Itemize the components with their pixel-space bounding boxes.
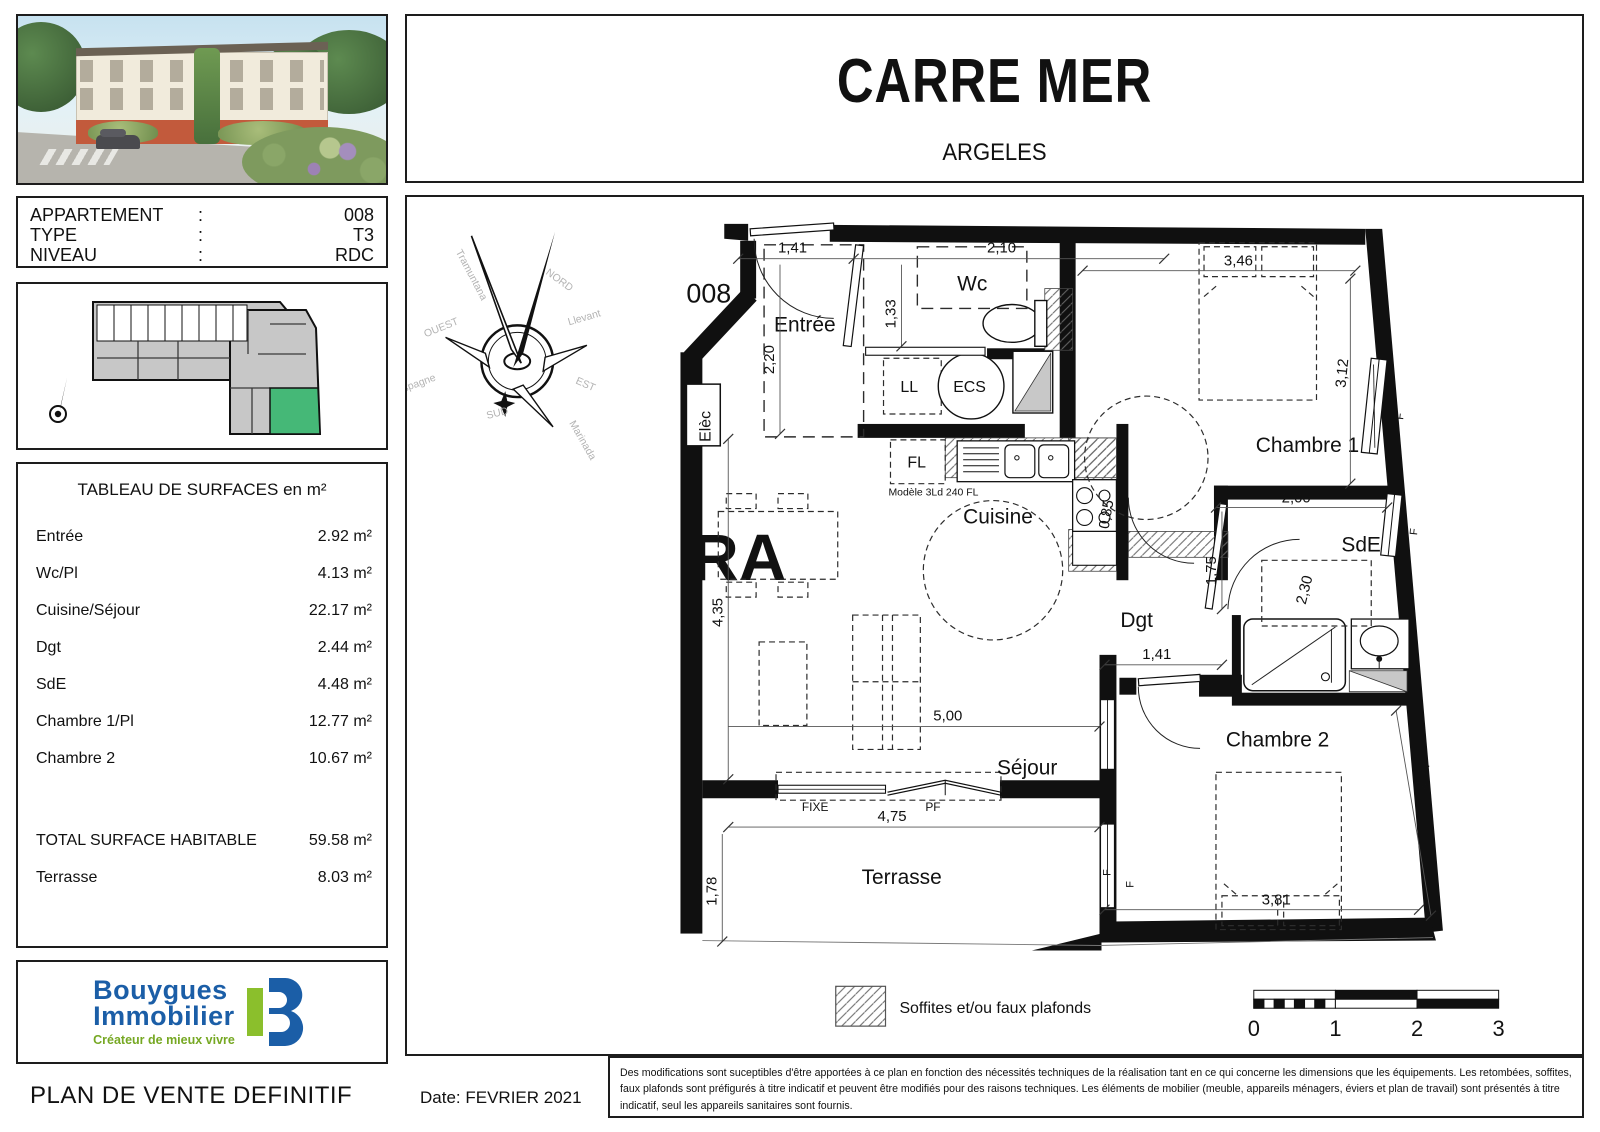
scale-tick: 3: [1493, 1016, 1505, 1041]
row-label: SdE: [36, 676, 66, 694]
table-row: Chambre 210.67 m²: [36, 750, 372, 768]
floor-plan-svg: RA Tramuntana NORD OUEST Llevant EST SUD…: [407, 197, 1582, 1054]
room-label-chambre2: Chambre 2: [1226, 728, 1329, 751]
bed-chambre1: [1199, 243, 1316, 400]
date-label: Date: FEVRIER 2021: [420, 1088, 582, 1108]
laundry-closet: LL ECS: [866, 347, 1004, 419]
scale-tick: 0: [1248, 1016, 1260, 1041]
room-label-sde: SdE: [1341, 533, 1381, 556]
bouygues-logo-mark: [245, 972, 311, 1052]
photo-crosswalk: [39, 149, 118, 165]
row-label: Wc/Pl: [36, 565, 78, 583]
washer-label: LL: [900, 379, 918, 396]
table-row: Wc/Pl4.13 m²: [36, 565, 372, 583]
room-label-terrasse: Terrasse: [862, 866, 942, 889]
row-label: Entrée: [36, 528, 83, 546]
disclaimer-box: Des modifications sont suceptibles d'êtr…: [608, 1056, 1584, 1118]
room-label-cuisine: Cuisine: [963, 505, 1033, 528]
compass-label-tramuntana: Tramuntana: [453, 248, 489, 303]
window-f-label: F: [1101, 869, 1113, 876]
building-locator-plan: [16, 282, 388, 450]
table-total-row: TOTAL SURFACE HABITABLE59.58 m²: [36, 832, 372, 850]
photo-car: [96, 135, 140, 149]
pf-label: PF: [925, 800, 940, 814]
row-value: 8.03 m²: [318, 869, 372, 887]
unit-number: 008: [686, 279, 731, 309]
table-row: Dgt2.44 m²: [36, 639, 372, 657]
locator-compass-icon: [48, 378, 67, 422]
dim: 5,00: [933, 708, 962, 725]
kitchen-counter: [957, 441, 1074, 482]
elec-niche: Elèc: [686, 384, 720, 446]
info-label: APPARTEMENT: [30, 205, 198, 225]
toilet: [983, 301, 1047, 347]
room-label-sejour: Séjour: [997, 756, 1057, 779]
table-row: Terrasse8.03 m²: [36, 869, 372, 887]
row-value: 12.77 m²: [309, 713, 372, 731]
info-row: TYPE : T3: [30, 225, 374, 245]
row-label: Cuisine/Séjour: [36, 602, 140, 620]
dim: 4,75: [878, 808, 907, 825]
room-label-dgt: Dgt: [1120, 609, 1153, 632]
elec-label: Elèc: [697, 411, 714, 442]
shower-clearance: [1262, 560, 1371, 626]
apartment-info-box: APPARTEMENT : 008 TYPE : T3 NIVEAU : RDC: [16, 196, 388, 268]
table-row: Cuisine/Séjour22.17 m²: [36, 602, 372, 620]
row-value: 2.92 m²: [318, 528, 372, 546]
dim: 2,20: [761, 345, 778, 374]
project-title: CARRE MER: [513, 46, 1477, 117]
disclaimer-text: Des modifications sont suceptibles d'êtr…: [620, 1067, 1572, 1112]
bouygues-logo-box: Bouygues Immobilier Créateur de mieux vi…: [16, 960, 388, 1064]
row-value: 4.13 m²: [318, 565, 372, 583]
dim: 3,81: [1262, 892, 1291, 909]
info-colon: :: [198, 205, 218, 225]
scale-tick: 2: [1411, 1016, 1423, 1041]
window-f-label: F: [1408, 528, 1421, 536]
dim: 3,12: [1332, 358, 1352, 389]
row-value: 59.58 m²: [309, 832, 372, 850]
bathroom-sink: [1351, 619, 1409, 669]
table-row: Entrée2.92 m²: [36, 528, 372, 546]
compass-label-vent-espagne: Vent d'Espagne: [407, 373, 438, 408]
dim: 2,77: [1412, 759, 1434, 791]
compass-rose: Tramuntana NORD OUEST Llevant EST SUD Ve…: [407, 232, 602, 462]
fixe-label: FIXE: [802, 800, 829, 814]
room-label-wc: Wc: [957, 273, 987, 296]
bouygues-logo-text: Bouygues Immobilier Créateur de mieux vi…: [93, 977, 235, 1047]
info-value: RDC: [218, 245, 374, 265]
room-label-entree: Entrée: [774, 313, 836, 336]
info-colon: :: [198, 225, 218, 245]
info-value: T3: [218, 225, 374, 245]
row-label: Chambre 1/Pl: [36, 713, 134, 731]
legend: Soffites et/ou faux plafonds: [836, 986, 1091, 1026]
dim: 1,78: [703, 877, 720, 906]
surface-table-title: TABLEAU DE SURFACES en m²: [18, 480, 386, 500]
scale-tick: 1: [1329, 1016, 1341, 1041]
info-row: APPARTEMENT : 008: [30, 205, 374, 225]
watermark: RA: [691, 521, 786, 594]
compass-label-llevant: Llevant: [567, 308, 602, 328]
floor-plan-box: RA Tramuntana NORD OUEST Llevant EST SUD…: [405, 195, 1584, 1056]
row-value: 22.17 m²: [309, 602, 372, 620]
room-label-chambre1: Chambre 1: [1256, 434, 1359, 457]
compass-label-est: EST: [574, 376, 598, 395]
project-title-box: CARRE MER ARGELES: [405, 14, 1584, 183]
fridge-model-label: Modèle 3Ld 240 FL: [888, 488, 978, 499]
dim: 2,00: [1282, 490, 1311, 507]
info-label: NIVEAU: [30, 245, 198, 265]
row-value: 2.44 m²: [318, 639, 372, 657]
window-f-label: F: [1394, 412, 1407, 420]
coffee-table: [759, 642, 807, 726]
table-row: SdE4.48 m²: [36, 676, 372, 694]
legend-soffits-label: Soffites et/ou faux plafonds: [899, 1000, 1091, 1017]
logo-tagline: Créateur de mieux vivre: [93, 1033, 235, 1047]
logo-name-line2: Immobilier: [93, 1003, 235, 1029]
dim: 1,33: [882, 299, 899, 328]
info-label: TYPE: [30, 225, 198, 245]
dim: 1,41: [1142, 646, 1171, 663]
compass-label-sud: SUD: [485, 406, 509, 422]
compass-label-nord: NORD: [543, 267, 575, 294]
locator-building: [93, 302, 320, 434]
row-label: Chambre 2: [36, 750, 115, 768]
compass-label-ouest: OUEST: [423, 316, 461, 340]
row-label: Dgt: [36, 639, 61, 657]
photo-ivy: [194, 48, 220, 144]
water-heater-label: ECS: [953, 379, 986, 396]
dim: 1,75: [1203, 556, 1220, 585]
window-f-label: F: [1124, 881, 1136, 888]
plan-de-vente-page: APPARTEMENT : 008 TYPE : T3 NIVEAU : RDC: [0, 0, 1600, 1132]
dim: 1,41: [778, 240, 807, 257]
row-value: 10.67 m²: [309, 750, 372, 768]
dim: 2,10: [987, 240, 1016, 257]
fridge-label: FL: [907, 455, 926, 472]
dim: 3,46: [1224, 253, 1253, 270]
shower: [1244, 619, 1346, 691]
locator-svg: [18, 284, 386, 448]
info-value: 008: [218, 205, 374, 225]
dim: 2,30: [1293, 574, 1317, 606]
scale-bar: 0 1 2 3: [1248, 990, 1505, 1041]
dim: 4,35: [709, 598, 726, 627]
document-title: PLAN DE VENTE DEFINITIF: [30, 1082, 352, 1110]
row-value: 4.48 m²: [318, 676, 372, 694]
info-row: NIVEAU : RDC: [30, 245, 374, 265]
sofa: [853, 615, 921, 749]
logo-name-line1: Bouygues: [93, 977, 235, 1003]
surface-table: TABLEAU DE SURFACES en m² Entrée2.92 m² …: [16, 462, 388, 948]
building-render-photo: [16, 14, 388, 185]
info-colon: :: [198, 245, 218, 265]
compass-label-marinada: Marinada: [566, 419, 597, 462]
row-label: TOTAL SURFACE HABITABLE: [36, 832, 257, 850]
project-city: ARGELES: [454, 139, 1535, 167]
row-label: Terrasse: [36, 869, 97, 887]
highlighted-unit: [270, 388, 320, 434]
table-row: Chambre 1/Pl12.77 m²: [36, 713, 372, 731]
